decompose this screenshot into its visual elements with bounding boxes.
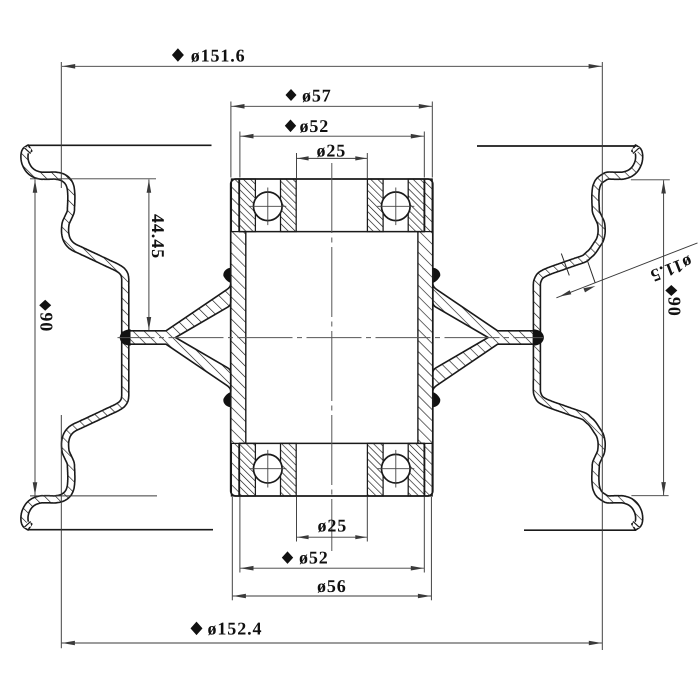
svg-text:90: 90 [665,297,685,317]
svg-text:ø56: ø56 [317,576,347,596]
svg-text:ø152.4: ø152.4 [208,619,263,639]
svg-text:ø57: ø57 [302,85,332,105]
svg-text:ø25: ø25 [318,516,348,536]
svg-text:ø52: ø52 [300,116,330,136]
svg-text:ø151.6: ø151.6 [191,46,246,66]
svg-text:44.45: 44.45 [148,214,168,259]
svg-text:90: 90 [37,312,57,332]
svg-text:ø52: ø52 [299,548,329,568]
svg-text:ø25: ø25 [317,140,347,160]
